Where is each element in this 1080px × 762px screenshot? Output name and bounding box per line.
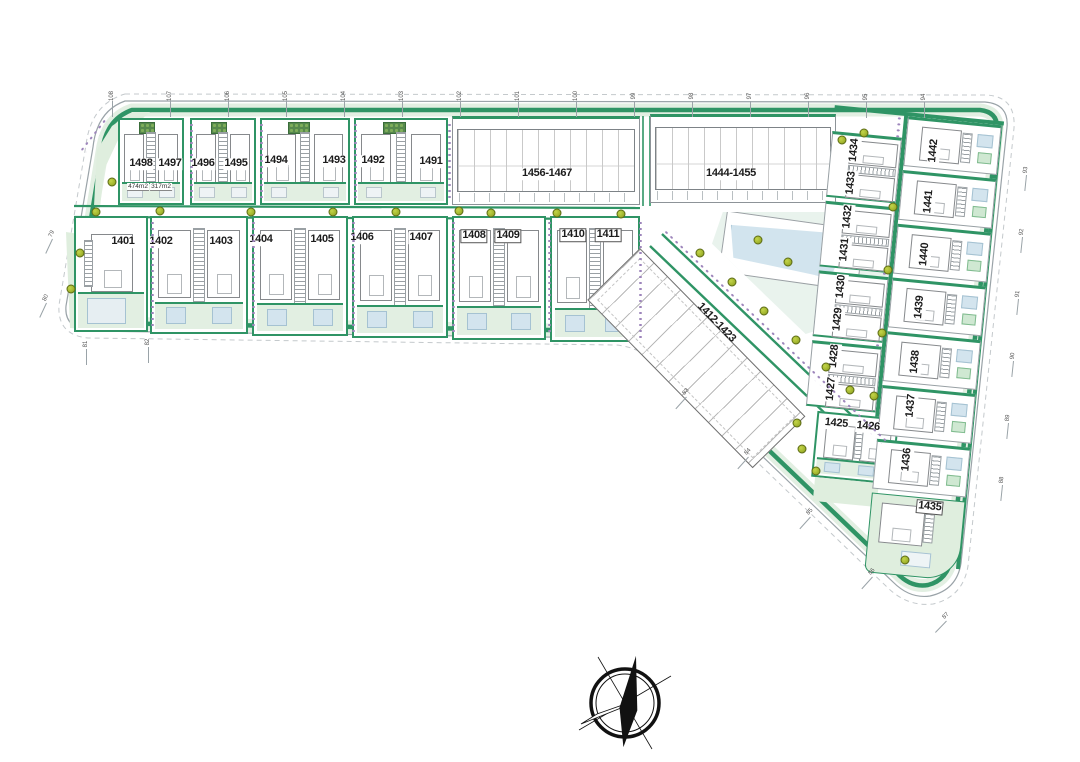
apartment-terraces [459, 193, 633, 202]
private-pool [166, 307, 186, 324]
plot-cell-1441 [898, 170, 996, 229]
plot-label-1437: 1437 [904, 393, 918, 419]
private-pool [945, 457, 962, 471]
tree [860, 129, 869, 138]
stair-hatch [300, 132, 310, 186]
private-pool [267, 309, 287, 326]
plot-cell-1437 [877, 385, 975, 444]
apartment-building [457, 129, 635, 192]
boundary-tick: 81 [83, 341, 89, 348]
private-garden [357, 305, 443, 333]
shrub-row [450, 220, 457, 334]
garden-patch [956, 367, 971, 379]
boundary-tick: 95 [863, 94, 869, 101]
plot-label-1429: 1429 [831, 306, 845, 332]
private-pool [511, 313, 531, 330]
plot-cell-1402-1403 [150, 216, 248, 334]
private-pool [212, 307, 232, 324]
plot-cell-1439 [888, 278, 986, 337]
boundary-tick: 89 [1005, 414, 1012, 421]
private-garden [358, 182, 444, 201]
shrub-row [546, 220, 553, 336]
boundary-tick-line [924, 102, 925, 118]
boundary-tick: 103 [399, 91, 405, 101]
boundary-tick-line [866, 102, 867, 118]
stair-hatch [929, 455, 942, 486]
boundary-tick: 107 [167, 91, 173, 101]
tree [455, 207, 464, 216]
private-pool [971, 188, 988, 202]
plot-label-1431: 1431 [838, 237, 852, 263]
stair-hatch [955, 186, 968, 217]
plot-label-1425: 1425 [823, 417, 849, 431]
shrub-row [350, 220, 357, 332]
shrub-row [352, 122, 359, 202]
block-label-1456-1467: 1456-1467 [521, 168, 573, 180]
private-pool [413, 311, 433, 328]
boundary-tick: 101 [515, 91, 521, 101]
boundary-tick: 100 [573, 91, 579, 101]
tree [754, 236, 763, 245]
patio [420, 187, 436, 198]
boundary-tick-line [170, 101, 171, 117]
tree [878, 329, 887, 338]
tree [92, 208, 101, 217]
tree [870, 392, 879, 401]
area-label-1498: 474m2 [127, 183, 149, 191]
stair-hatch [950, 240, 963, 271]
plot-label-1407: 1407 [408, 232, 433, 244]
tree [392, 208, 401, 217]
private-pool [858, 465, 875, 476]
tree [784, 258, 793, 267]
stair-hatch [394, 228, 406, 306]
plot-label-1401: 1401 [110, 236, 135, 248]
private-pool [467, 313, 487, 330]
plot-label-1441: 1441 [922, 189, 936, 215]
garden-patch [951, 421, 966, 433]
patio [231, 187, 247, 198]
tree [846, 386, 855, 395]
stair-hatch [960, 133, 973, 164]
area-label-1497: 317m2 [150, 183, 172, 191]
boundary-tick: 96 [805, 93, 811, 100]
shrub-row [250, 220, 257, 330]
shrub-row [446, 122, 453, 202]
boundary-tick-line [86, 349, 87, 365]
private-garden [78, 292, 144, 328]
boundary-tick: 108 [109, 91, 115, 101]
boundary-tick: 99 [631, 93, 637, 100]
private-garden [257, 303, 343, 331]
plot-label-1405: 1405 [309, 234, 334, 246]
private-garden [194, 182, 252, 201]
boundary-tick-line [634, 101, 635, 117]
plot-label-1410: 1410 [559, 228, 586, 242]
boundary-tick-line [112, 101, 113, 117]
private-pool [951, 403, 968, 417]
boundary-tick: 93 [1023, 166, 1030, 173]
north-compass-icon [565, 643, 685, 762]
plot-label-1411: 1411 [595, 228, 622, 242]
boundary-tick-line [692, 101, 693, 117]
stair-hatch [84, 240, 93, 287]
boundary-tick: 105 [283, 91, 289, 101]
tree [838, 136, 847, 145]
boundary-tick-line [576, 101, 577, 117]
plot-label-1432: 1432 [841, 204, 855, 230]
boundary-tick: 106 [225, 91, 231, 101]
plot-cell-1436 [872, 439, 970, 498]
plot-label-1497: 1497 [157, 158, 182, 170]
tree [329, 208, 338, 217]
private-pool [956, 349, 973, 363]
tree [812, 467, 821, 476]
plot-label-1493: 1493 [321, 155, 346, 167]
stair-hatch [944, 294, 957, 325]
block-label-1444-1455: 1444-1455 [705, 168, 757, 180]
garden-patch [967, 260, 982, 272]
stair-hatch [934, 401, 947, 432]
tree [696, 249, 705, 258]
private-pool [966, 242, 983, 256]
stair-hatch [193, 228, 205, 303]
plot-label-1434: 1434 [848, 137, 862, 163]
plot-label-1409: 1409 [494, 229, 521, 243]
plot-cell-1401 [74, 216, 148, 332]
boundary-tick: 104 [341, 91, 347, 101]
plot-label-1433: 1433 [844, 170, 858, 196]
plot-cell-1432-1431 [819, 201, 895, 273]
stair-hatch [939, 348, 952, 379]
boundary-tick-line [402, 101, 403, 117]
plot-cell-1435 [864, 493, 965, 582]
private-pool [961, 295, 978, 309]
boundary-tick-line [228, 101, 229, 117]
boundary-tick-line [344, 101, 345, 117]
plot-label-1495: 1495 [223, 158, 248, 170]
private-pool [565, 315, 585, 332]
plot-label-1436: 1436 [900, 447, 914, 473]
tree [487, 209, 496, 218]
tree [617, 210, 626, 219]
tree [884, 266, 893, 275]
boundary-tick-line [286, 101, 287, 117]
plot-cell-1442 [903, 116, 1001, 175]
tree [901, 556, 910, 565]
boundary-tick-line [808, 101, 809, 117]
garden-patch [977, 152, 992, 164]
private-pool [367, 311, 387, 328]
plot-label-1430: 1430 [835, 274, 849, 300]
garden-patch [946, 475, 961, 487]
plot-label-1498: 1498 [128, 158, 153, 170]
shrub-row [258, 122, 265, 202]
private-garden [155, 302, 243, 329]
plot-label-1492: 1492 [360, 155, 385, 167]
plot-label-1442: 1442 [927, 138, 941, 164]
tree [760, 307, 769, 316]
garden-patch [961, 313, 976, 325]
boundary-tick: 91 [1015, 290, 1022, 297]
boundary-tick-line [518, 101, 519, 117]
private-pool [824, 462, 841, 473]
tree [76, 249, 85, 258]
plot-label-1438: 1438 [909, 349, 923, 375]
site-plan: 1434 1433 1432 1431 1430 1429 1428 1427 … [0, 0, 1080, 762]
tree [792, 336, 801, 345]
stair-hatch [396, 132, 406, 186]
apartment-block-1456-1467 [452, 116, 640, 205]
boundary-tick: 97 [747, 93, 753, 100]
private-pool [313, 309, 333, 326]
tree [156, 207, 165, 216]
boundary-tick: 82 [145, 339, 151, 346]
boundary-tick-line [148, 347, 149, 363]
tree [889, 203, 898, 212]
plot-label-1494: 1494 [263, 155, 288, 167]
boundary-tick: 102 [457, 91, 463, 101]
plot-cell-1438 [883, 331, 981, 390]
plot-label-1491: 1491 [418, 156, 443, 168]
tree [108, 178, 117, 187]
shrub-row [149, 220, 156, 330]
patio [199, 187, 215, 198]
shrub-row [188, 122, 195, 202]
tree [67, 285, 76, 294]
tree [553, 209, 562, 218]
plot-label-1435: 1435 [916, 499, 944, 515]
private-pool [87, 298, 125, 324]
boundary-tick: 94 [921, 94, 927, 101]
plot-label-1403: 1403 [208, 236, 233, 248]
patio [323, 187, 339, 198]
plot-label-1408: 1408 [460, 229, 487, 243]
boundary-tick: 92 [1019, 228, 1026, 235]
private-garden [457, 306, 541, 335]
boundary-tick: 90 [1010, 352, 1017, 359]
boundary-tick-line [750, 101, 751, 117]
boundary-tick: 98 [689, 93, 695, 100]
tree [793, 419, 802, 428]
plot-label-1439: 1439 [913, 294, 927, 320]
tree [728, 278, 737, 287]
boundary-tick-line [460, 101, 461, 117]
garden-patch [972, 206, 987, 218]
tree [247, 208, 256, 217]
plot-cell-1440 [893, 224, 991, 283]
boundary-tick: 88 [999, 476, 1006, 483]
private-pool [976, 134, 993, 148]
lawn-patch [813, 477, 879, 507]
private-garden [264, 182, 346, 201]
patio [366, 187, 382, 198]
patio [271, 187, 287, 198]
tree [798, 445, 807, 454]
plot-label-1440: 1440 [918, 241, 932, 267]
shrub-row [637, 220, 644, 338]
stair-hatch [294, 228, 306, 305]
tree [822, 363, 831, 372]
